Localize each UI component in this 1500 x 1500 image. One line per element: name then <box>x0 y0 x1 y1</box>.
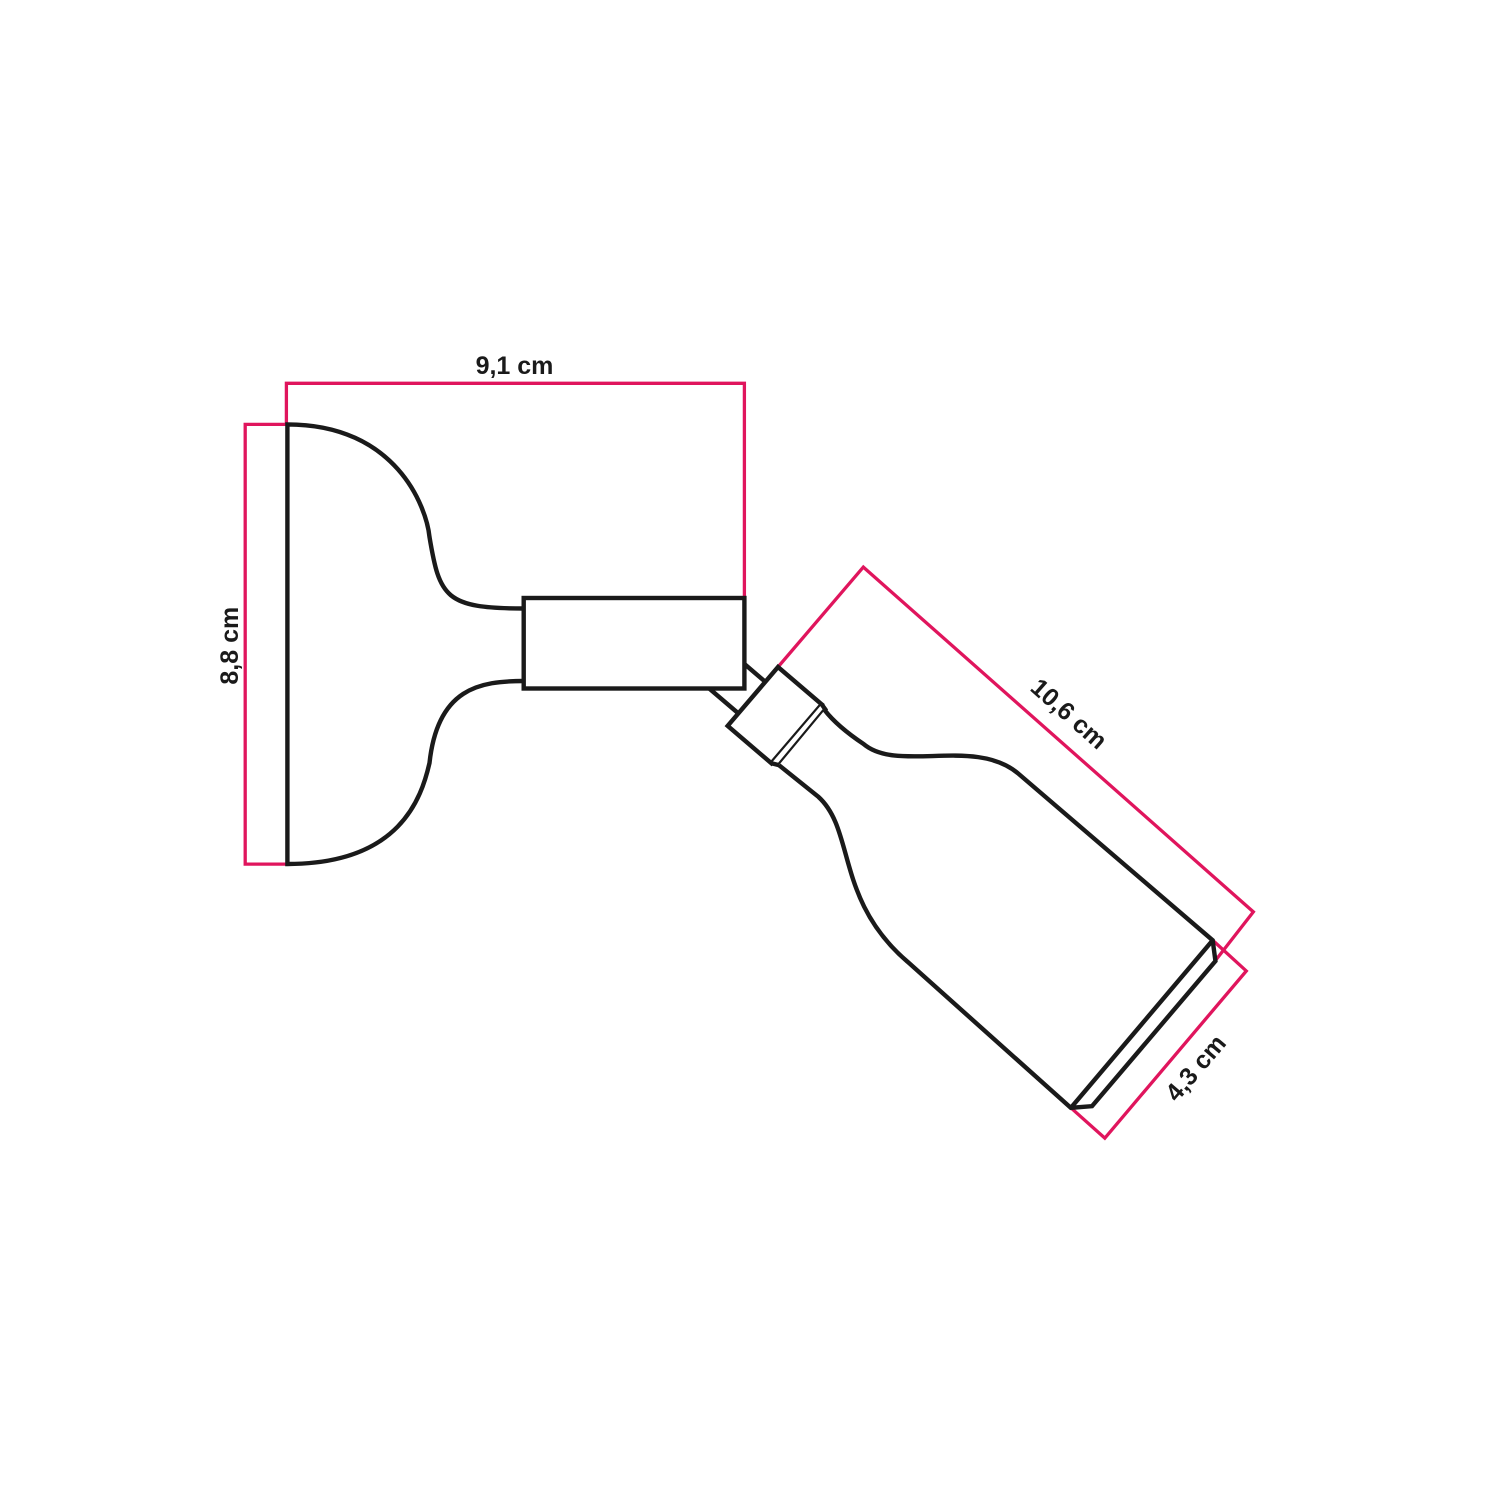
svg-text:9,1 cm: 9,1 cm <box>476 352 554 380</box>
svg-text:8,8 cm: 8,8 cm <box>216 607 244 685</box>
